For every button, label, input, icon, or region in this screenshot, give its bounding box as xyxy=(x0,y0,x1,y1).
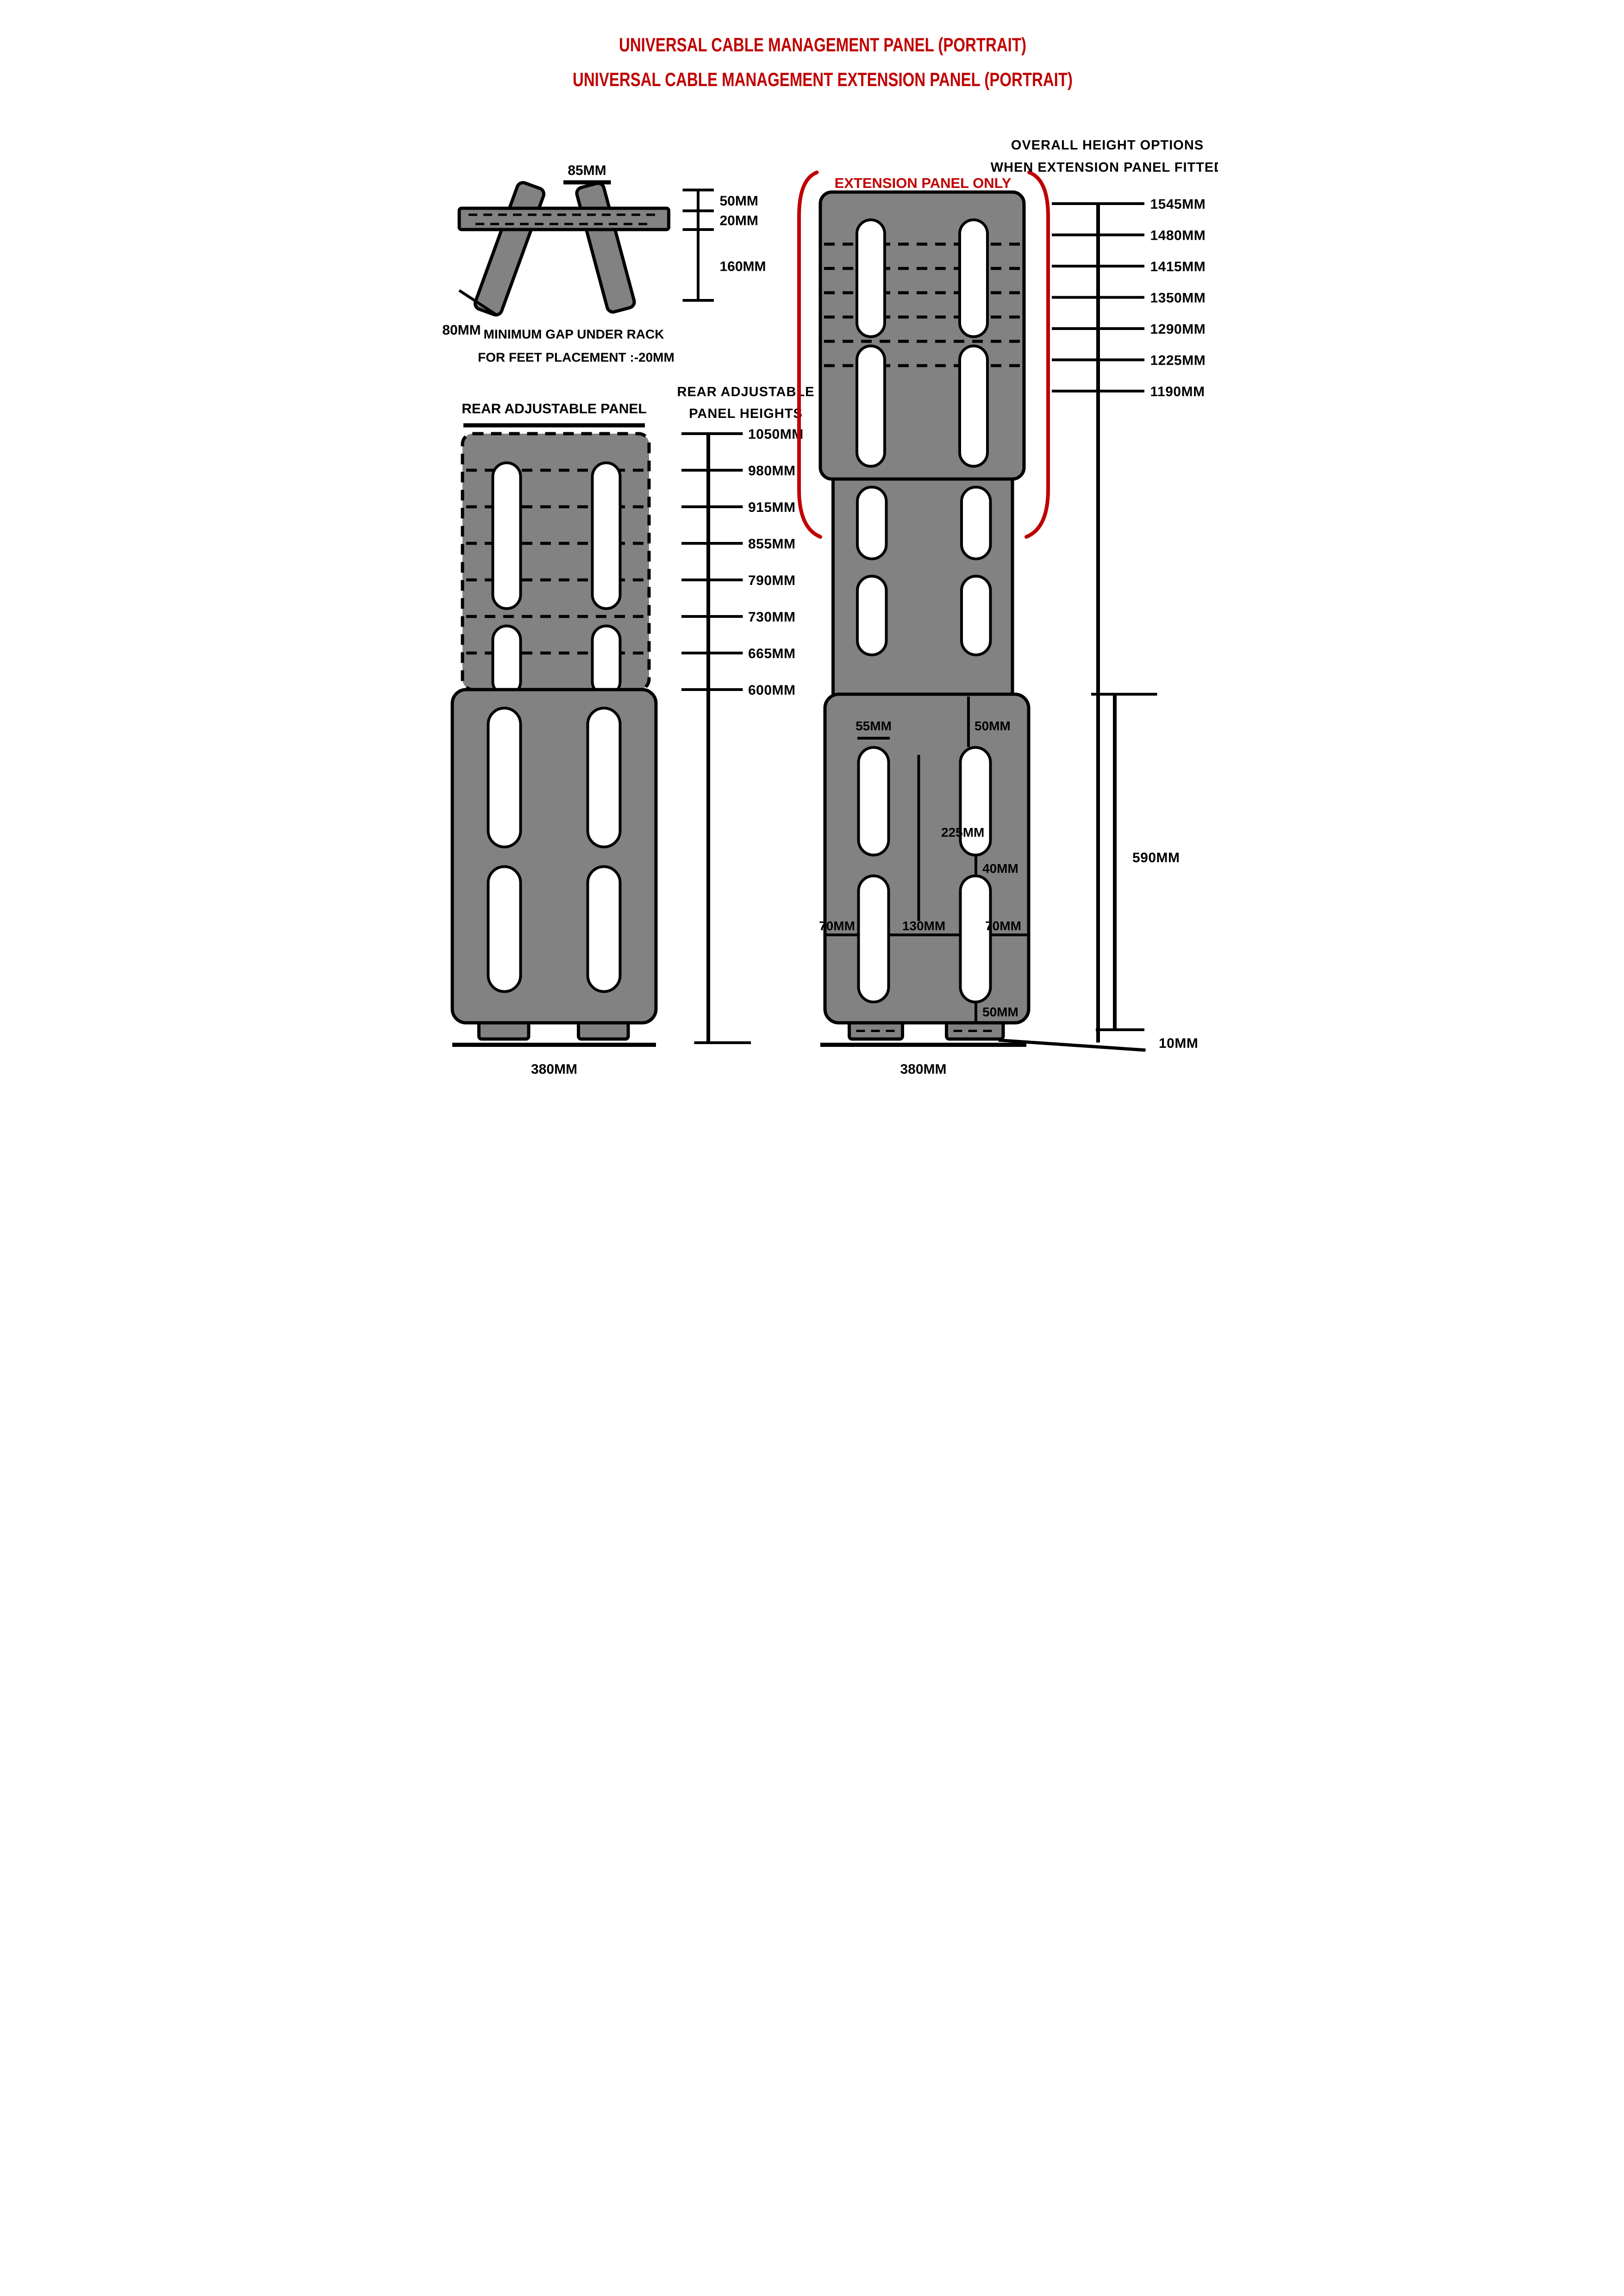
front-slot-lower-right xyxy=(588,867,620,992)
page-title: UNIVERSAL CABLE MANAGEMENT PANEL (PORTRA… xyxy=(619,34,1026,56)
main-slot-upper-right xyxy=(962,487,991,559)
foot-clearance-label: 10MM xyxy=(1159,1036,1198,1051)
feet-detail: 85MM 50MM 20MM 160MM 80MM MINIMUM GAP UN… xyxy=(442,163,766,365)
height-value: 980MM xyxy=(748,463,796,479)
right-slot-lower-left xyxy=(859,876,889,1002)
ext-slot-upper-left xyxy=(857,220,885,337)
cable-management-diagram: UNIVERSAL CABLE MANAGEMENT PANEL (PORTRA… xyxy=(406,0,1218,1148)
left-margin-label: 70MM xyxy=(819,919,855,933)
rear-slot-upper-left xyxy=(493,463,521,609)
height-value: 730MM xyxy=(748,610,796,625)
rear-slot-upper-right xyxy=(593,463,620,609)
height-ruler-title2: PANEL HEIGHTS xyxy=(689,406,803,421)
foot-leg-right xyxy=(575,182,636,313)
height-value: 855MM xyxy=(748,536,796,552)
height-value: 790MM xyxy=(748,573,796,588)
extension-brace-right xyxy=(1026,173,1048,537)
rack-thickness-label: 20MM xyxy=(720,213,758,229)
main-slot-lower-right xyxy=(962,576,991,655)
diagram-page: UNIVERSAL CABLE MANAGEMENT PANEL (PORTRA… xyxy=(406,0,1218,1148)
front-panel xyxy=(452,690,656,1023)
slot-length-label: 225MM xyxy=(941,825,984,840)
slot-width-label: 55MM xyxy=(856,719,892,733)
front-slot-upper-left xyxy=(488,708,521,847)
overall-value: 1545MM xyxy=(1150,197,1206,212)
center-spacing-label: 130MM xyxy=(902,919,945,933)
feet-note-line1: MINIMUM GAP UNDER RACK xyxy=(484,327,664,342)
overall-value: 1350MM xyxy=(1150,291,1206,306)
right-slot-upper-left xyxy=(859,747,889,855)
main-slot-upper-left xyxy=(857,487,887,559)
overall-value: 1225MM xyxy=(1150,353,1206,368)
overall-value: 1290MM xyxy=(1150,322,1206,337)
overall-title1: OVERALL HEIGHT OPTIONS xyxy=(1011,138,1204,153)
height-value: 915MM xyxy=(748,500,796,515)
height-ruler-title1: REAR ADJUSTABLE xyxy=(677,385,815,399)
rear-panel-title: REAR ADJUSTABLE PANEL xyxy=(462,401,646,417)
overall-title2: WHEN EXTENSION PANEL FITTED xyxy=(991,160,1218,175)
height-value: 1050MM xyxy=(748,427,804,442)
left-bottom-width-label: 380MM xyxy=(531,1062,577,1077)
rear-slot-lower-right xyxy=(593,626,620,696)
below-rack-label: 160MM xyxy=(720,259,766,274)
height-value: 665MM xyxy=(748,646,796,661)
right-bottom-width-label: 380MM xyxy=(900,1062,946,1077)
extension-only-label: EXTENSION PANEL ONLY xyxy=(835,175,1012,191)
front-height-label: 590MM xyxy=(1132,850,1180,865)
slot-offset-label: 50MM xyxy=(974,719,1011,733)
height-value: 600MM xyxy=(748,683,796,698)
above-rack-label: 50MM xyxy=(720,193,758,209)
foot-inset-label: 50MM xyxy=(982,1005,1018,1019)
rear-slot-lower-left xyxy=(493,626,521,696)
ext-slot-upper-right xyxy=(960,220,987,337)
left-assembly: REAR ADJUSTABLE PANEL 310MM 380MM xyxy=(452,401,656,1077)
foot-width-label: 80MM xyxy=(442,323,481,338)
main-slot-lower-left xyxy=(857,576,887,655)
page-subtitle: UNIVERSAL CABLE MANAGEMENT EXTENSION PAN… xyxy=(573,68,1073,90)
overall-value: 1190MM xyxy=(1150,384,1205,399)
extension-brace-left xyxy=(799,173,820,537)
right-margin-label: 70MM xyxy=(985,919,1021,933)
rear-height-ruler: REAR ADJUSTABLE PANEL HEIGHTS 1050MM 980… xyxy=(677,385,815,1043)
ext-slot-lower-right xyxy=(960,346,987,467)
extension-panel xyxy=(820,192,1024,479)
gap-width-label: 85MM xyxy=(568,163,606,178)
slot-gap-label: 40MM xyxy=(982,861,1018,876)
right-front-panel xyxy=(825,694,1029,1023)
feet-note-line2: FOR FEET PLACEMENT :-20MM xyxy=(478,350,675,365)
rack-bar xyxy=(459,208,669,230)
front-slot-lower-left xyxy=(488,867,521,992)
overall-value: 1415MM xyxy=(1150,259,1206,274)
ext-slot-lower-left xyxy=(857,346,885,467)
front-slot-upper-right xyxy=(588,708,620,847)
foot-leg-left xyxy=(474,181,546,317)
overall-value: 1480MM xyxy=(1150,228,1206,243)
right-slot-lower-right xyxy=(961,876,991,1002)
right-assembly: 55MM 50MM 225MM 40MM 70MM 130MM 70MM 50M… xyxy=(819,192,1029,1077)
